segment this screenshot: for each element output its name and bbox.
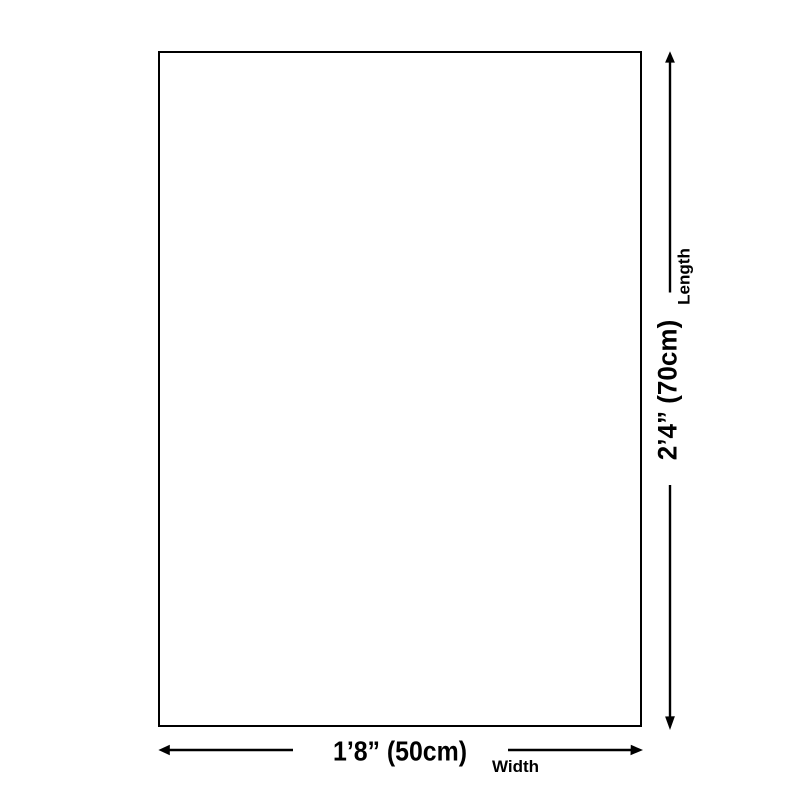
svg-text:1’8” (50cm): 1’8” (50cm) bbox=[333, 736, 467, 767]
svg-text:Length: Length bbox=[675, 248, 694, 305]
svg-text:Width: Width bbox=[492, 757, 539, 776]
svg-text:2’4” (70cm): 2’4” (70cm) bbox=[653, 320, 683, 461]
